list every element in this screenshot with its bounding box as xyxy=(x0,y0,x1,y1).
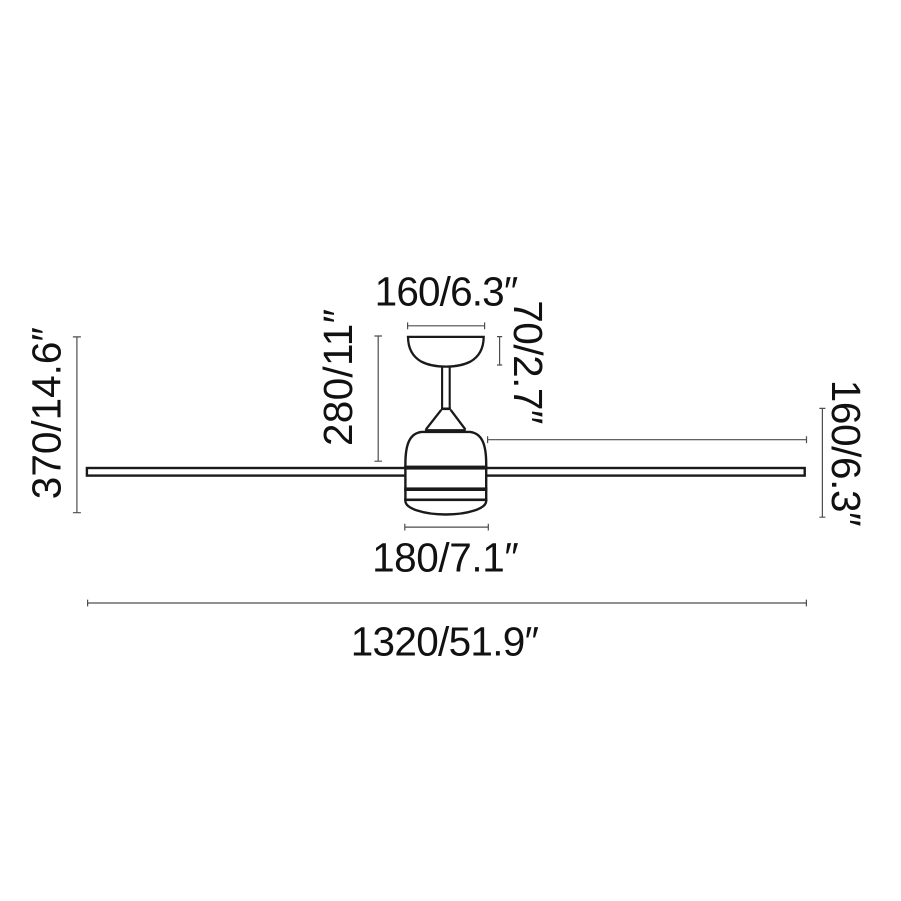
svg-text:1320/51.9″: 1320/51.9″ xyxy=(351,618,539,664)
svg-text:180/7.1″: 180/7.1″ xyxy=(372,534,518,580)
svg-text:370/14.6″: 370/14.6″ xyxy=(23,327,69,499)
svg-text:280/11″: 280/11″ xyxy=(315,309,361,446)
svg-text:70/2.7″: 70/2.7″ xyxy=(505,300,551,424)
svg-text:160/6.3″: 160/6.3″ xyxy=(375,269,518,315)
svg-text:160/6.3″: 160/6.3″ xyxy=(823,380,869,526)
